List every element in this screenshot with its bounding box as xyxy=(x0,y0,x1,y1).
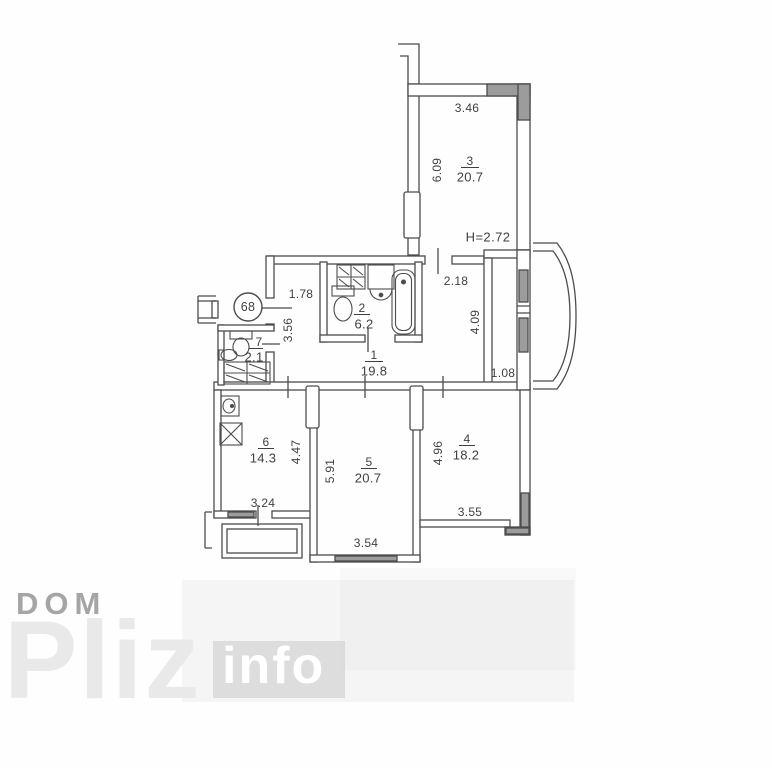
balcony-right xyxy=(533,243,576,389)
dim-niche-width: 1.08 xyxy=(491,366,516,380)
dim-corridor: 2.18 xyxy=(444,274,469,288)
pilaster xyxy=(410,386,423,430)
room5-number: 5 xyxy=(366,455,373,469)
unit-number: 68 xyxy=(241,300,256,314)
room1-number: 1 xyxy=(371,348,378,362)
dim-kitchen-depth: 4.47 xyxy=(289,440,303,465)
washing-machine-icon xyxy=(337,265,365,289)
dim-niche-depth: 4.09 xyxy=(468,310,482,335)
room5-underline xyxy=(361,468,377,469)
balcony-bottom-left xyxy=(222,524,302,558)
stove-icon xyxy=(220,423,242,445)
vent-shaft-outline xyxy=(398,44,419,84)
room2-number: 2 xyxy=(359,301,366,315)
dim-hall-top: 1.78 xyxy=(289,287,314,301)
window xyxy=(519,318,528,352)
room6-area: 14.3 xyxy=(250,451,277,466)
dim-room5-width: 3.54 xyxy=(354,536,379,550)
room7-area: 2.1 xyxy=(245,350,264,365)
bath-sink-icon xyxy=(368,265,394,300)
room1-underline xyxy=(365,361,383,362)
pilaster xyxy=(404,192,420,238)
room4-underline xyxy=(459,445,475,446)
dim-hall-left: 3.56 xyxy=(281,318,295,343)
ceiling-height-note: H=2.72 xyxy=(466,230,511,245)
room3-underline xyxy=(461,167,479,168)
toilet-icon xyxy=(332,286,354,321)
window xyxy=(506,528,529,534)
room2-underline xyxy=(354,314,370,315)
room3-number: 3 xyxy=(467,154,474,168)
dim-room4-width: 3.55 xyxy=(458,505,483,519)
window xyxy=(228,512,254,517)
dim-room4-depth: 4.96 xyxy=(431,441,445,466)
dim-room3-depth: 6.09 xyxy=(430,158,444,183)
room4-number: 4 xyxy=(464,432,471,446)
floorplan-page: Pliz DOM info xyxy=(0,0,772,768)
dim-room3-width: 3.46 xyxy=(455,101,480,115)
outer-wall-bracket xyxy=(205,512,212,548)
room3-area: 20.7 xyxy=(457,170,484,185)
room2-area: 6.2 xyxy=(355,317,374,332)
room6-number: 6 xyxy=(263,435,270,449)
room6-underline xyxy=(258,448,274,449)
pilaster xyxy=(306,386,319,428)
window xyxy=(519,270,528,302)
room5-area: 20.7 xyxy=(355,471,382,486)
kitchen-sink-icon xyxy=(221,396,239,416)
dim-kitchen-width: 3.24 xyxy=(251,496,276,510)
floorplan-drawing xyxy=(0,0,772,768)
cabinet-icon xyxy=(224,362,270,384)
window xyxy=(335,556,397,561)
room7-number: 7 xyxy=(256,335,263,349)
wall-shaded-corner-2 xyxy=(518,84,530,120)
dim-room5-depth: 5.91 xyxy=(323,459,337,484)
bathtub-icon xyxy=(392,270,415,334)
room4-area: 18.2 xyxy=(453,448,480,463)
room1-area: 19.8 xyxy=(361,364,388,379)
